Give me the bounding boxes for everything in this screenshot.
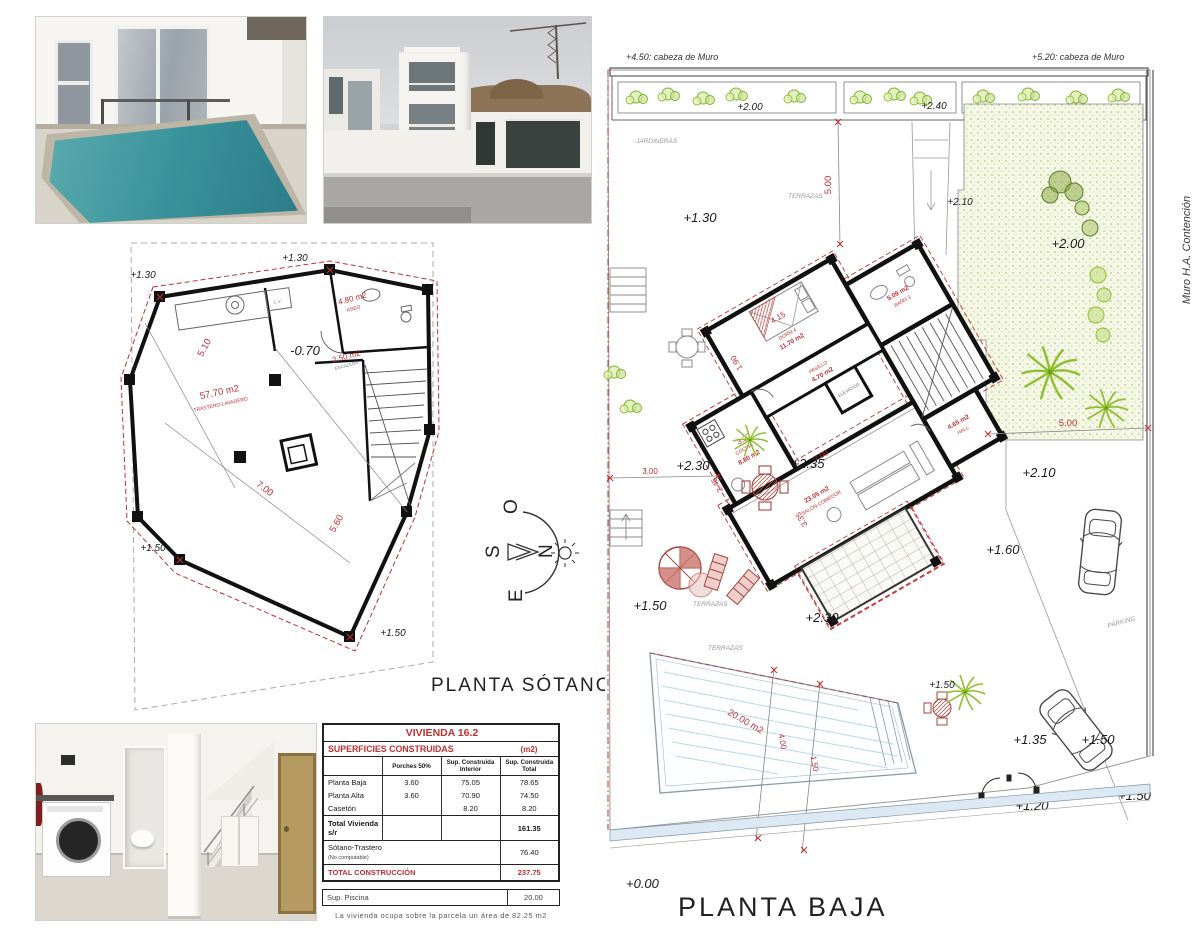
photo3-wood-door [278, 753, 316, 914]
photo-basement-interior [35, 723, 317, 921]
dim-3: 3.00 [642, 467, 658, 476]
sotano-note: (No computable) [328, 855, 369, 861]
total-construccion-row: TOTAL CONSTRUCCIÓN 237.75 [323, 864, 559, 881]
col-total: Sup. Construida Total [500, 757, 559, 776]
level-000: +0.00 [626, 876, 660, 891]
planter-level-1: +2.00 [737, 102, 763, 113]
photo-pool-exterior [35, 16, 307, 224]
wall-note-left: +4.50: cabeza de Muro [626, 52, 718, 62]
sotano-walls [130, 270, 430, 637]
photo1-dark-corner [247, 17, 306, 40]
car-1 [1075, 508, 1126, 596]
areas-table: VIVIENDA 16.2 SUPERFICIES CONSTRUIDAS (m… [322, 723, 560, 920]
sotano-level-tl: +1.30 [130, 270, 156, 281]
level-150a: +1.50 [634, 598, 668, 613]
level-135: +1.35 [1014, 732, 1048, 747]
plan-sheet: VIVIENDA 16.2 SUPERFICIES CONSTRUIDAS (m… [0, 0, 1200, 939]
photo3-vent [61, 755, 75, 765]
baja-left-dim [607, 473, 721, 481]
parcel-footnote: La vivienda ocupa sobre la parcela un ár… [322, 911, 560, 920]
compass-arrow-icon [508, 544, 538, 560]
baja-parking [1006, 440, 1128, 820]
piscina-value: 20.00 [507, 889, 559, 905]
sotano-label: Sótano-Trastero [328, 843, 382, 852]
col-porches: Porches 50% [382, 757, 441, 776]
compass-east: E [506, 589, 527, 602]
level-160: +1.60 [987, 542, 1021, 557]
compass-north: N [536, 544, 557, 558]
table-subtitle: SUPERFICIES CONSTRUIDAS [323, 742, 500, 757]
upper-terrace-level: +1.30 [684, 210, 718, 225]
baja-top-dim [835, 119, 843, 247]
upper-right-level: +2.10 [947, 197, 973, 208]
total-vivienda-row: Total Vivienda s/r 161.35 [323, 816, 559, 841]
photo2-front-wall [324, 130, 471, 175]
level-150c: +1.50 [1082, 732, 1116, 747]
sotano-row: Sótano-Trastero (No computable) 76.40 [323, 841, 559, 865]
plan-sotano-drawing: +1.30 +1.30 4.80 m2 ASEO -0.70 5.10 57.7… [115, 233, 605, 733]
compass-south: S [483, 545, 504, 558]
baja-stairs-topleft [610, 268, 646, 312]
edge-bush-2 [620, 400, 642, 413]
sotano-lv-label: L.V. [274, 299, 282, 305]
level-230a: +2.30 [677, 458, 711, 473]
photo2-garage-door [506, 119, 581, 168]
photo1-window-left [55, 40, 93, 133]
muro-contencion-label: Muro H.A. Contención [1181, 196, 1193, 304]
plan-sotano-title: PLANTA SÓTANO [431, 674, 605, 696]
baja-parasol [659, 547, 713, 597]
photo2-pedestrian-door [476, 122, 495, 165]
dim-5-garden: 5.00 [1059, 418, 1078, 429]
baja-side-table [669, 329, 705, 367]
sotano-level-br: +1.50 [380, 628, 406, 639]
dim-5-vertical: 5.00 [823, 176, 834, 195]
sotano-level-tm: +1.30 [282, 253, 308, 264]
piscina-table: Sup. Piscina 20.00 [322, 889, 560, 906]
wall-note-right: +5.20: cabeza de Muro [1032, 52, 1124, 62]
parking-label: PARKING [1107, 615, 1137, 629]
table-row: Planta Baja 3.60 75.05 78.65 [323, 776, 559, 790]
terrazas-top-label: TERRAZAS [788, 193, 823, 200]
photo3-stair-railing [36, 724, 316, 920]
terrazas-low-label: TERRAZAS [708, 645, 743, 652]
garden-level: +2.00 [1052, 236, 1086, 251]
baja-stairs-left [610, 510, 642, 546]
photo-street-exterior [323, 16, 592, 224]
baja-pool-table-set [924, 692, 951, 725]
level-210b: +2.10 [1023, 465, 1057, 480]
baja-loungers [704, 554, 759, 605]
sotano-level-bl: +1.50 [140, 543, 166, 554]
compass-west: O [501, 499, 522, 514]
photo1-side-wall [282, 40, 306, 129]
planter-level-2: +2.40 [921, 101, 947, 112]
jardineras-label: JARDINERAS [635, 138, 678, 145]
plan-baja-title: PLANTA BAJA [678, 892, 888, 922]
photo2-balcony-low [409, 104, 454, 133]
col-interior: Sup. Construida Interior [441, 757, 500, 776]
level-235: +2.35 [792, 456, 826, 471]
terrazas-left-label: TERRAZAS [693, 601, 728, 608]
piscina-label: Sup. Piscina [323, 889, 508, 905]
photo1-railing [101, 99, 231, 101]
level-150e: +1.50 [929, 680, 955, 691]
compass-rose: O S N E [468, 486, 603, 626]
table-row: Planta Alta 3.60 70.90 74.50 [323, 789, 559, 802]
sotano-level-mid: -0.70 [290, 343, 320, 358]
baja-walkway [610, 784, 1150, 848]
table-unit: (m2) [500, 742, 559, 757]
table-row: Casetón 8.20 8.20 [323, 802, 559, 816]
photo2-balcony-up [409, 62, 454, 91]
plan-baja-drawing: +4.50: cabeza de Muro +5.20: cabeza de M… [598, 40, 1200, 939]
level-230b: +2.30 [806, 610, 840, 625]
edge-bush-1 [604, 366, 626, 379]
